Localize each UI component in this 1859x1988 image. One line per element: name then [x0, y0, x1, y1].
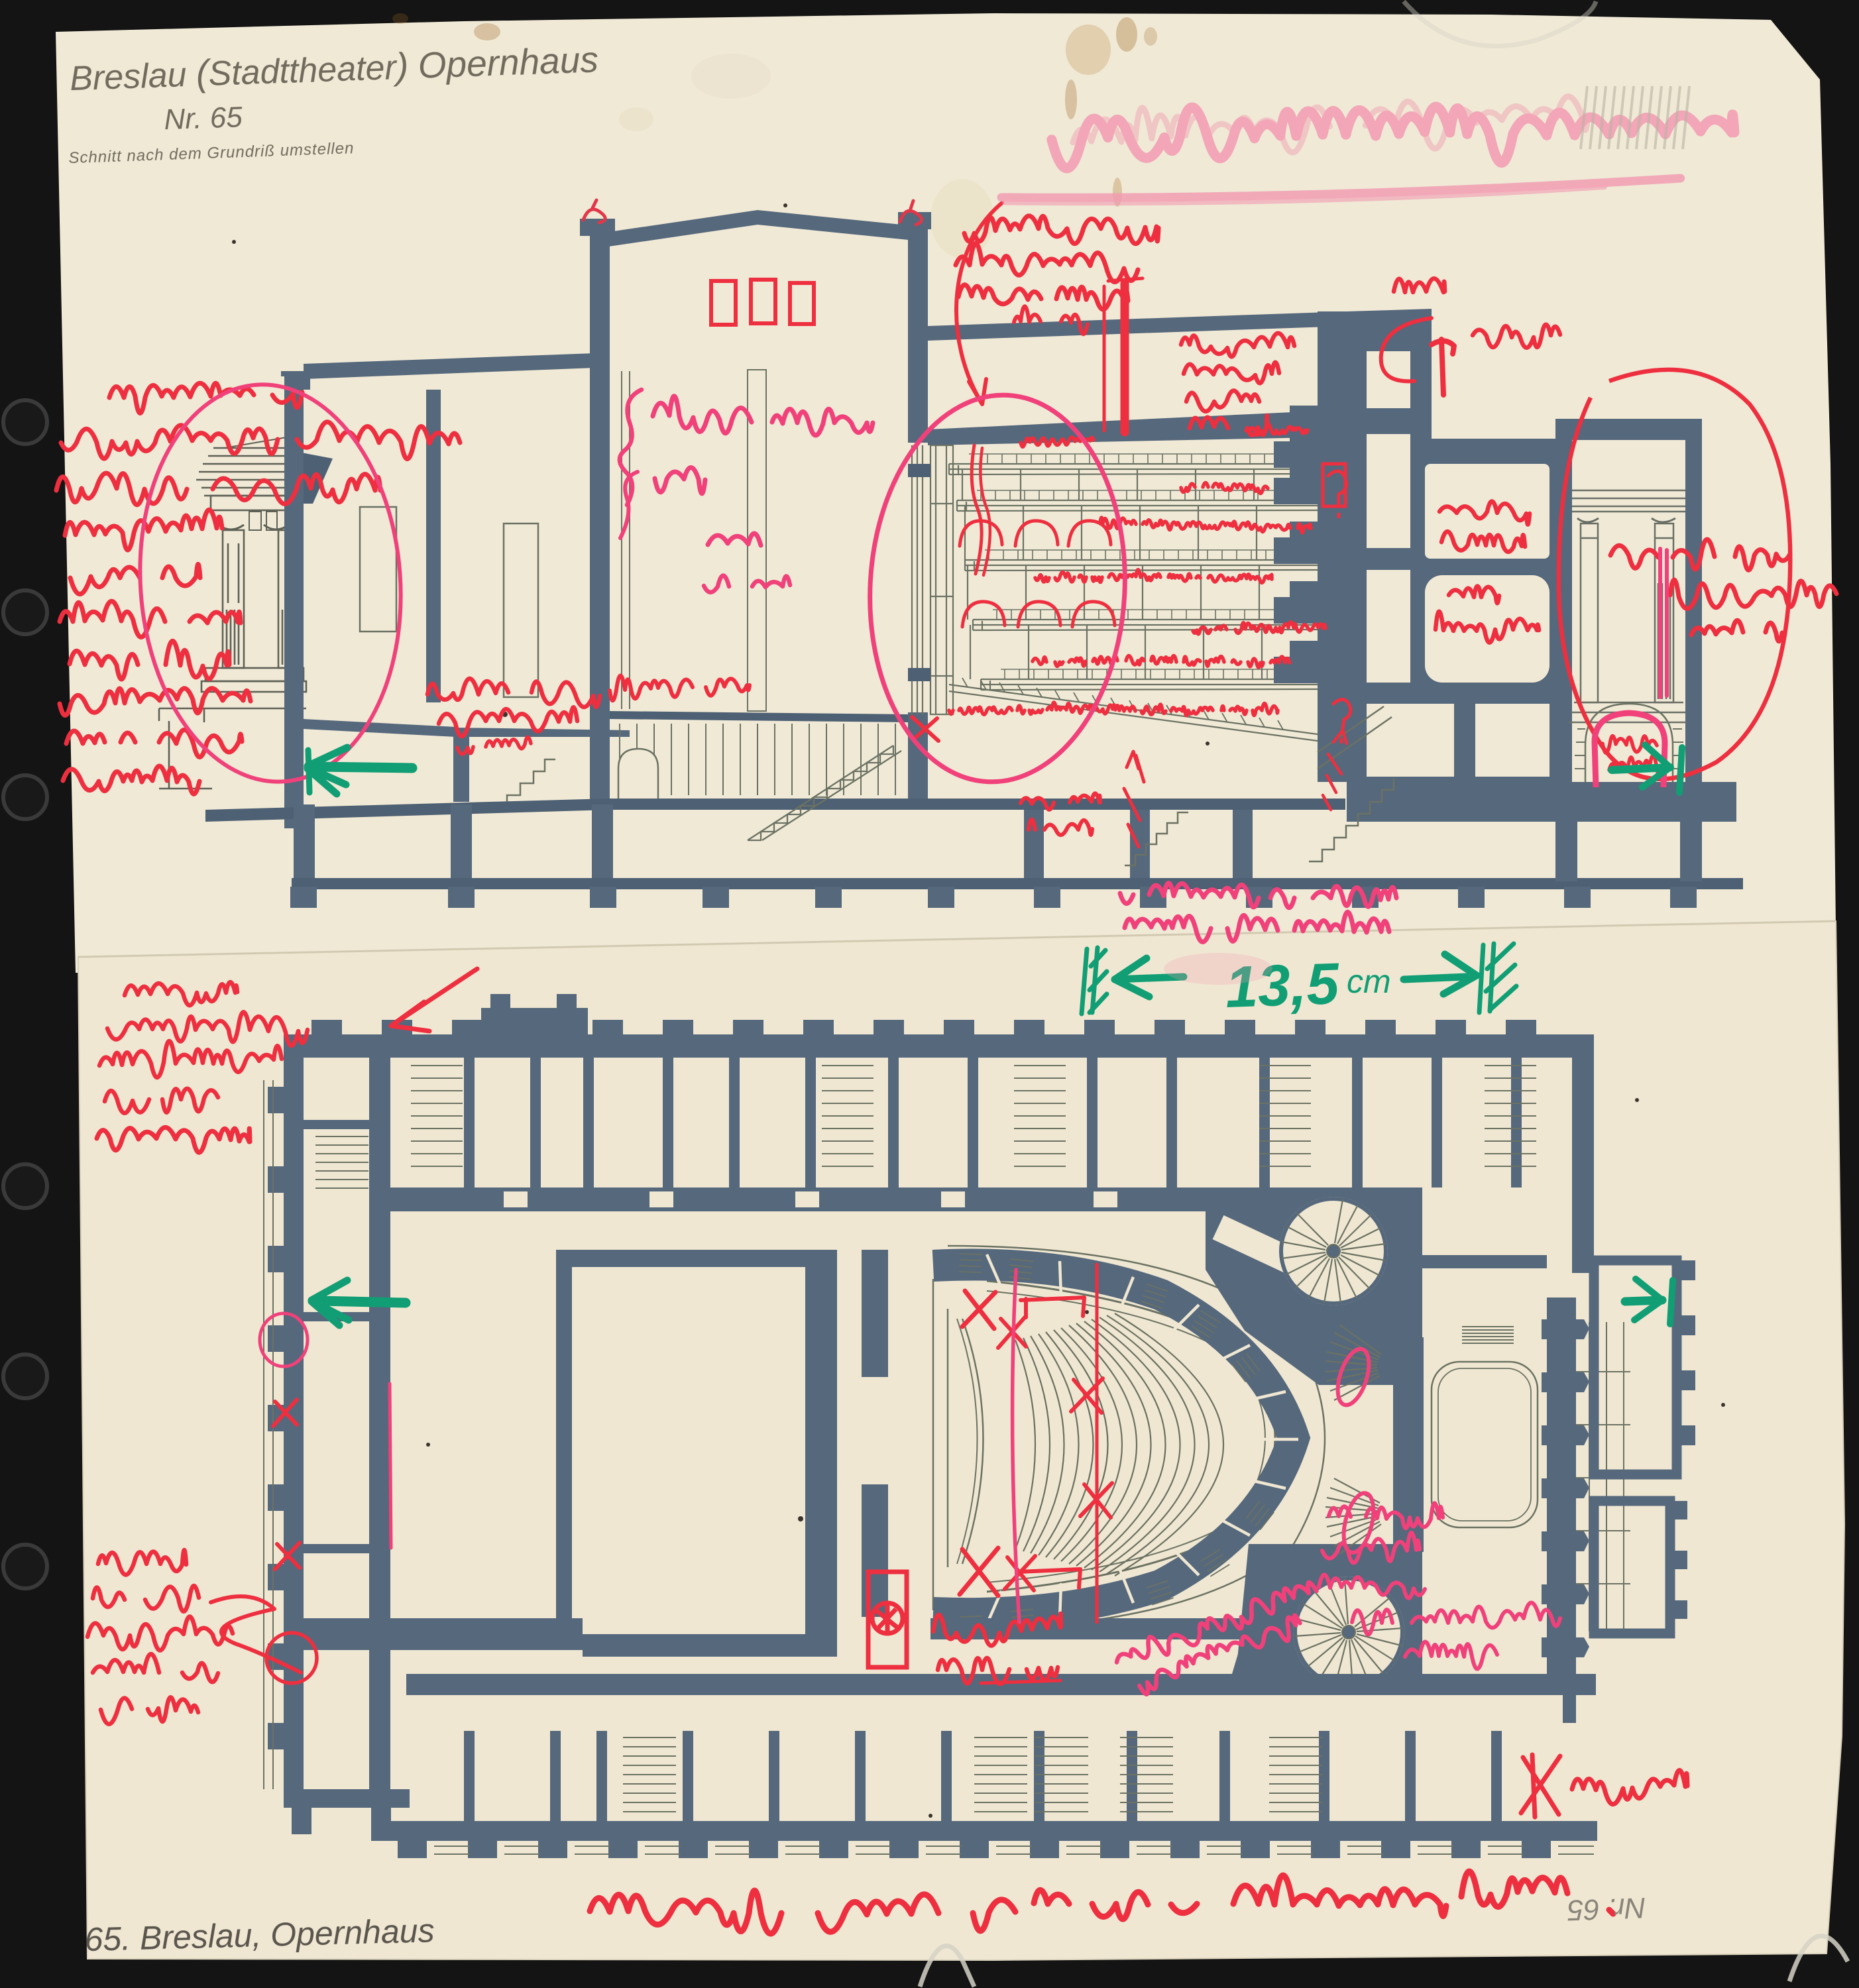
svg-text:Nr. 65: Nr. 65 — [1567, 1891, 1646, 1926]
svg-text:cm: cm — [1347, 963, 1391, 1000]
svg-text:Nr. 65: Nr. 65 — [164, 101, 243, 136]
